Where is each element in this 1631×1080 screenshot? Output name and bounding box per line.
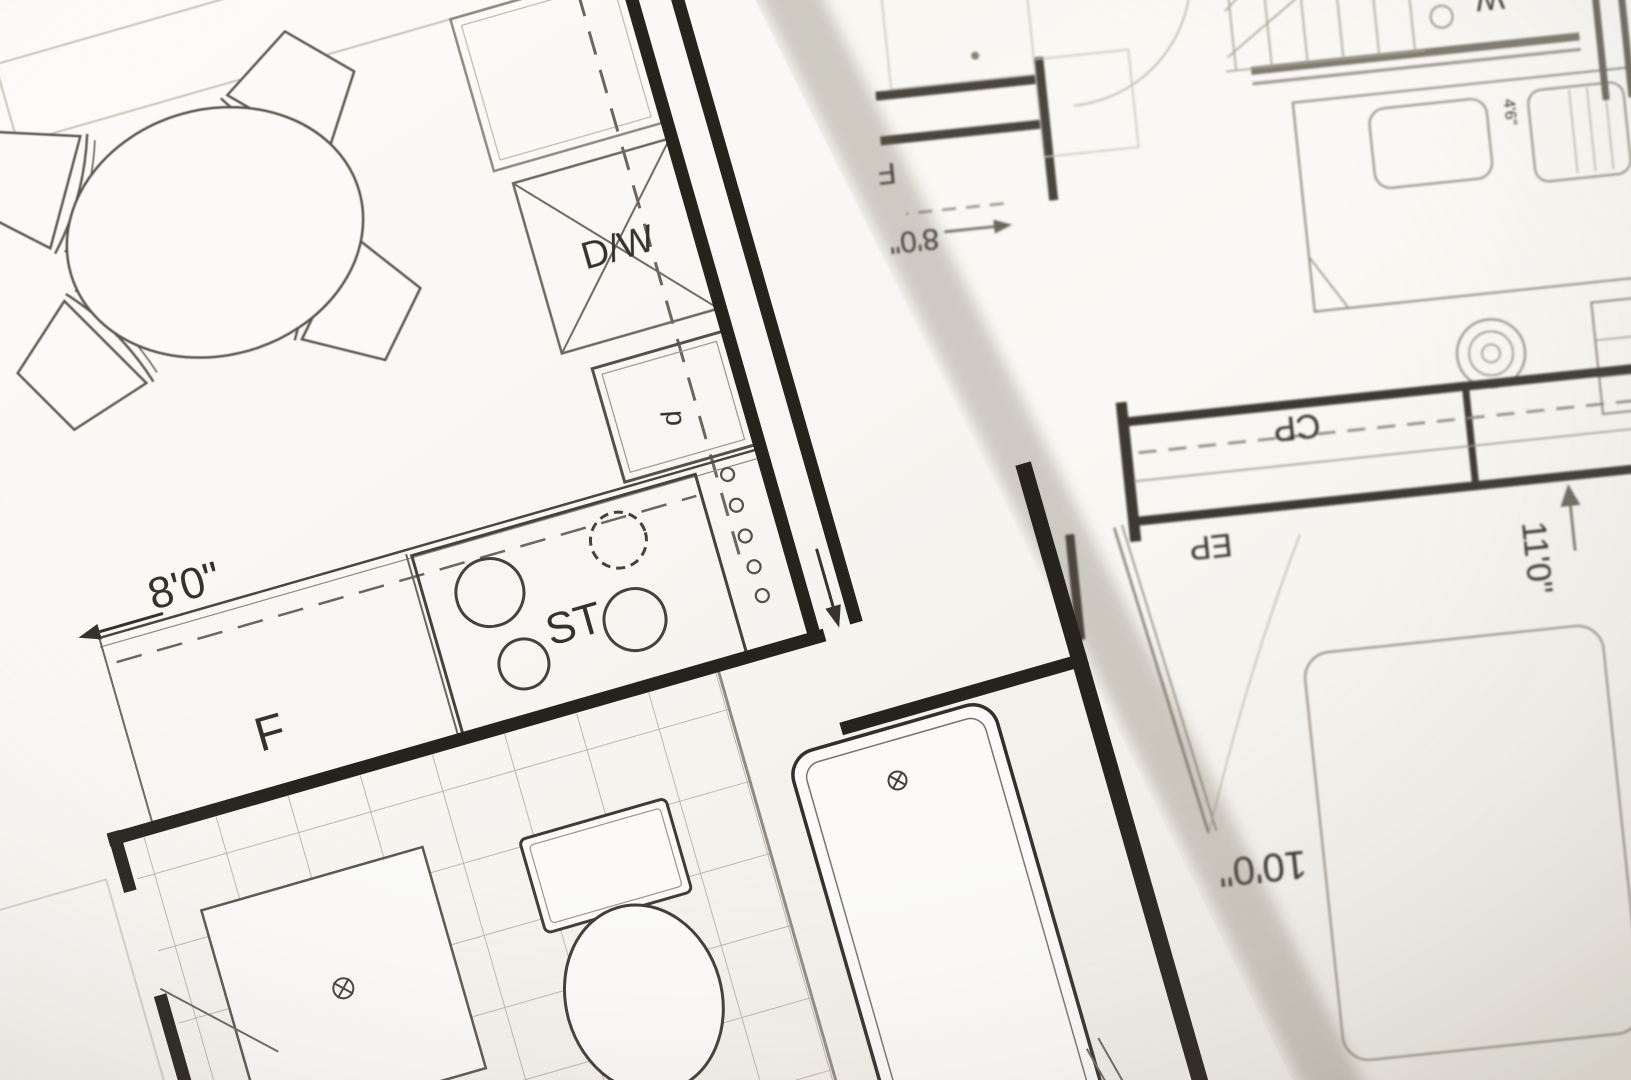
vignette bbox=[0, 0, 1631, 1080]
blueprint-photo: W 4'6" bbox=[0, 0, 1631, 1080]
blueprint-scene: W 4'6" bbox=[0, 0, 1631, 1080]
